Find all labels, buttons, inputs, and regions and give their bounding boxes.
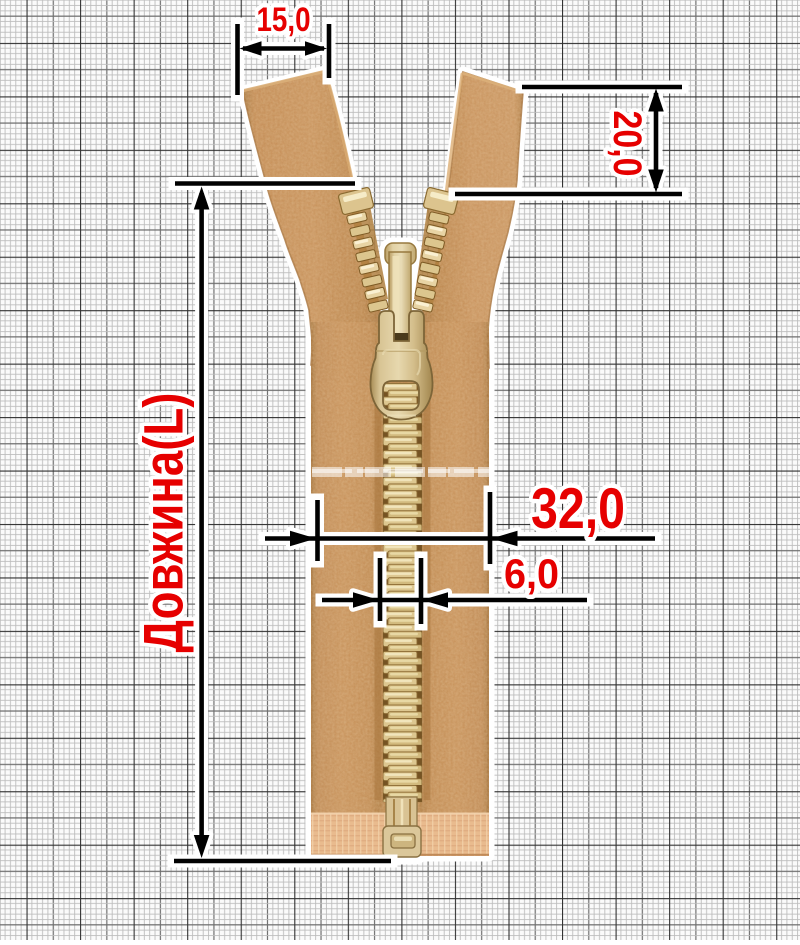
svg-text:Довжина(L): Довжина(L) — [132, 393, 195, 653]
svg-text:32,0: 32,0 — [531, 477, 625, 541]
svg-text:6,0: 6,0 — [504, 550, 559, 597]
svg-text:15,0: 15,0 — [257, 1, 311, 39]
svg-text:20,0: 20,0 — [605, 111, 649, 177]
